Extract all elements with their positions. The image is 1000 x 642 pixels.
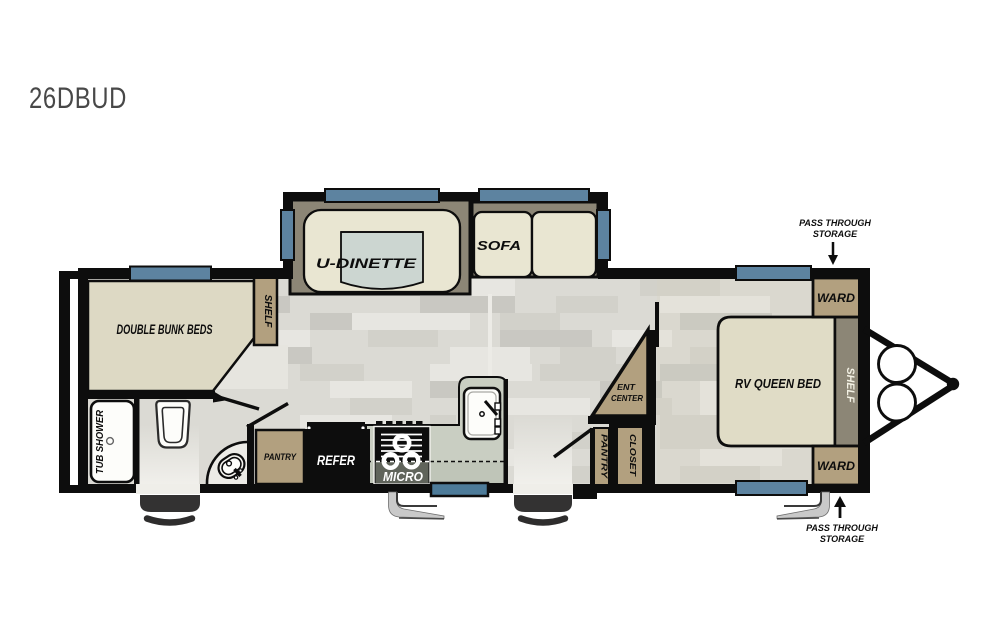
svg-text:REFER: REFER — [317, 453, 355, 468]
svg-text:PASS THROUGH: PASS THROUGH — [806, 523, 878, 533]
svg-text:DOUBLE BUNK BEDS: DOUBLE BUNK BEDS — [117, 322, 213, 337]
svg-text:MICRO: MICRO — [383, 470, 423, 484]
svg-text:STORAGE: STORAGE — [820, 534, 865, 544]
svg-text:RV QUEEN BED: RV QUEEN BED — [735, 376, 822, 391]
svg-text:ENT: ENT — [617, 382, 636, 392]
svg-text:STORAGE: STORAGE — [813, 229, 858, 239]
svg-text:PANTRY: PANTRY — [600, 434, 609, 479]
svg-text:CENTER: CENTER — [611, 393, 644, 403]
svg-text:SHELF: SHELF — [844, 368, 856, 403]
svg-text:TUB SHOWER: TUB SHOWER — [94, 410, 106, 474]
svg-text:CLOSET: CLOSET — [628, 434, 638, 477]
svg-text:SHELF: SHELF — [262, 295, 273, 329]
svg-text:WARD: WARD — [817, 461, 855, 473]
svg-text:26DBUD: 26DBUD — [29, 82, 127, 115]
svg-text:WARD: WARD — [817, 293, 855, 305]
svg-text:U-DINETTE: U-DINETTE — [316, 256, 417, 271]
svg-text:PANTRY: PANTRY — [264, 452, 297, 462]
svg-text:PASS THROUGH: PASS THROUGH — [799, 218, 871, 228]
svg-text:SOFA: SOFA — [477, 238, 521, 253]
